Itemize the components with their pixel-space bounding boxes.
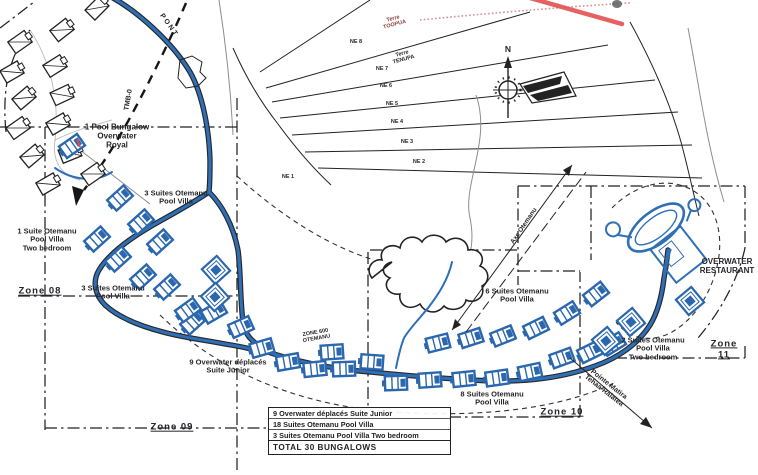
bungalows-layer (0, 0, 704, 390)
parcel-ne-4-label: NE 4 (391, 119, 403, 125)
zone-08-label: Zone 08 (19, 287, 62, 298)
bungalow (416, 372, 442, 388)
legend-total: TOTAL 30 BUNGALOWS (269, 441, 450, 454)
zone-11-label: Zone 11 (707, 339, 741, 360)
bungalow (358, 354, 384, 370)
existing-bungalow (50, 83, 77, 105)
legend-box: 9 Overwater déplacés Suite Junior 18 Sui… (268, 407, 451, 455)
existing-bungalow (8, 29, 35, 54)
suites-otemanu-2-two-bedroom-label: 2 Suites Otemanu Pool Villa Two bedroom (621, 336, 684, 361)
zone-boundaries (0, 2, 745, 472)
compass-rose (493, 56, 576, 118)
existing-bungalow (43, 53, 70, 77)
bungalow (103, 246, 131, 273)
bungalow (273, 353, 300, 371)
suites-otemanu-3-top-label: 3 Suites Otemanu Pool Villa (144, 190, 207, 207)
bungalow (382, 376, 407, 391)
bungalow (82, 226, 110, 253)
existing-bungalow (12, 84, 39, 110)
vegetation-cloud (369, 235, 488, 312)
overwater-restaurant-label: OVERWATER RESTAURANT (700, 258, 755, 276)
bungalow (126, 209, 154, 236)
parcel-ne-8-label: NE 8 (350, 39, 362, 45)
legend-row-two-bedroom: 3 Suites Otemanu Pool Villa Two bedroom (269, 430, 450, 441)
bungalow (520, 317, 549, 341)
bungalow (487, 325, 515, 347)
suite-otemanu-1-two-bedroom-label: 1 Suite Otemanu Pool Villa Two bedroom (17, 227, 76, 252)
bungalow (152, 274, 180, 301)
bungalow (318, 344, 344, 360)
bungalow (330, 362, 355, 377)
bungalow (202, 256, 230, 284)
bungalow (676, 287, 704, 315)
bungalow (456, 328, 484, 349)
parcel-ne-6-label: NE 6 (380, 83, 392, 89)
overwater-deplaces-9-label: 9 Overwater déplacés Suite Junior (189, 359, 266, 376)
existing-bungalow (50, 16, 77, 41)
existing-bungalow (46, 111, 73, 135)
parcel-ne-7-label: NE 7 (376, 66, 388, 72)
compass-north-label: N (505, 45, 511, 55)
bungalow (482, 370, 509, 387)
zone-09-label: Zone 09 (151, 423, 194, 434)
red-annotations (420, 0, 630, 24)
existing-bungalow (85, 0, 111, 20)
existing-bungalow (0, 59, 27, 83)
bungalow (581, 282, 609, 308)
bungalow (449, 371, 475, 388)
bungalow (105, 185, 133, 212)
existing-bungalow (6, 115, 33, 140)
suites-otemanu-3-mid-label: 3 Suites Otemanu Pool Villa (81, 285, 144, 302)
pool-bungalow-royal-label: 1 Pool Bungalow Overwater Royal (85, 124, 149, 151)
bungalow (423, 334, 451, 354)
bungalow (551, 301, 580, 326)
parcel-ne-2-label: NE 2 (413, 159, 425, 165)
parcel-ne-5-label: NE 5 (386, 101, 398, 107)
site-plan: 1 Pool Bungalow Overwater Royal3 Suites … (0, 0, 758, 475)
existing-bungalow (36, 171, 63, 195)
existing-bungalow (20, 142, 47, 168)
legend-row-pool-villa: 18 Suites Otemanu Pool Villa (269, 419, 450, 430)
bungalow (617, 308, 645, 336)
legend-row-junior: 9 Overwater déplacés Suite Junior (269, 408, 450, 419)
bungalow (300, 361, 326, 378)
parcel-ne-3-label: NE 3 (401, 139, 413, 145)
parcel-fan-lines (233, 0, 702, 216)
existing-bungalow (81, 161, 108, 186)
bungalow (145, 229, 173, 256)
suites-otemanu-6-label: 6 Suites Otemanu Pool Villa (485, 288, 548, 305)
suites-otemanu-8-label: 8 Suites Otemanu Pool Villa (460, 391, 523, 408)
parcel-ne-1-label: NE 1 (282, 174, 294, 180)
zone-10-label: Zone 10 (541, 408, 584, 419)
